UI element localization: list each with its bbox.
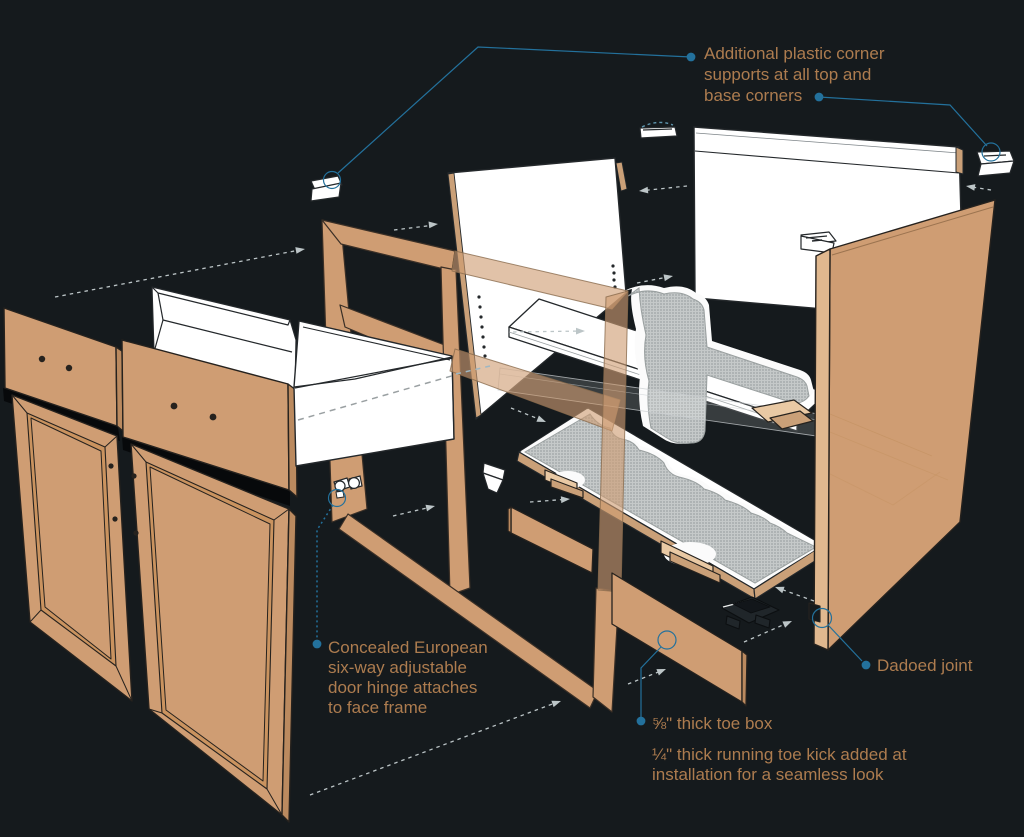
svg-text:base corners: base corners: [704, 86, 802, 105]
svg-text:¼" thick running toe kick adde: ¼" thick running toe kick added at: [652, 745, 907, 764]
svg-text:Dadoed joint: Dadoed joint: [877, 656, 973, 675]
svg-text:six-way adjustable: six-way adjustable: [328, 658, 467, 677]
svg-text:Additional plastic corner: Additional plastic corner: [704, 44, 885, 63]
svg-text:Concealed European: Concealed European: [328, 638, 488, 657]
svg-text:door hinge attaches: door hinge attaches: [328, 678, 477, 697]
svg-text:to face frame: to face frame: [328, 698, 427, 717]
svg-text:supports at all top and: supports at all top and: [704, 65, 871, 84]
svg-text:installation for a seamless lo: installation for a seamless look: [652, 765, 884, 784]
svg-text:⅝" thick toe box: ⅝" thick toe box: [652, 714, 773, 733]
